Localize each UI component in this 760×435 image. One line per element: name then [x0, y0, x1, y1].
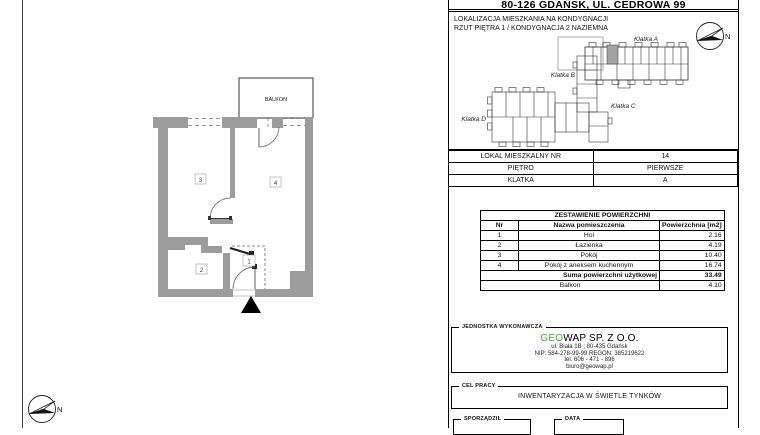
doors: [208, 127, 279, 296]
sum-label: Suma powierzchni użytkowej: [481, 271, 660, 281]
col-header-nr: Nr: [481, 221, 519, 231]
room-area: 10.40: [660, 251, 725, 261]
highlighted-unit: [607, 45, 618, 64]
purpose-text: INWENTARYZACJA W ŚWIETLE TYNKÓW: [452, 393, 727, 400]
table-row: Balkon 4.10: [481, 281, 725, 291]
contractor-email: biuro@geowap.pl: [452, 364, 727, 371]
building-outlines: [488, 37, 689, 147]
title-bar: 80-126 GDAŃSK, UL. CEDROWA 99: [449, 0, 738, 10]
room-name: Łazienka: [519, 241, 660, 251]
page-border-left: [22, 0, 23, 428]
table-row: 3 Pokój 10.40: [481, 251, 725, 261]
room-area: 4.19: [660, 241, 725, 251]
page-title: 80-126 GDAŃSK, UL. CEDROWA 99: [501, 0, 686, 10]
table-row: KLATKA A: [449, 175, 738, 187]
purpose-section: CEL PRACY INWENTARYZACJA W ŚWIETLE TYNKÓ…: [451, 386, 728, 409]
room-area: 2.16: [660, 231, 725, 241]
purpose-section-label: CEL PRACY: [459, 383, 498, 389]
room-name: Pokój z aneksem kuchennym: [519, 261, 660, 271]
room-nr: 4: [481, 261, 519, 271]
compass-needle-filled: [29, 409, 55, 414]
label-klatka-d: Klatka D: [461, 116, 486, 123]
room-area: 16.74: [660, 261, 725, 271]
unit-info-value: A: [593, 175, 738, 187]
col-header-name: Nazwa pomieszczenia: [519, 221, 660, 231]
date-section: DATA: [554, 419, 624, 435]
sum-value: 33.49: [660, 271, 725, 281]
contractor-name-rest: WAP SP. Z O.O.: [563, 333, 638, 344]
unit-info-value: PIERWSZE: [593, 163, 738, 175]
room-name: Pokój: [519, 251, 660, 261]
balcony-row-label: Balkon: [481, 281, 660, 291]
table-row: PIĘTRO PIERWSZE: [449, 163, 738, 175]
table-row: LOKAL MIESZKALNY NR 14: [449, 151, 738, 163]
prepared-by-section: SPORZĄDZIŁ: [453, 419, 531, 435]
area-table-title: ZESTAWIENIE POWIERZCHNI: [481, 211, 725, 221]
apartment-floor-plan: BALKON: [145, 70, 335, 320]
walls: [153, 117, 313, 297]
contractor-name: GEOWAP SP. Z O.O.: [452, 333, 727, 344]
label-klatka-a: Klatka A: [634, 36, 658, 43]
table-row: ZESTAWIENIE POWIERZCHNI: [481, 211, 725, 221]
balcony-label: BALKON: [265, 97, 287, 103]
date-label: DATA: [562, 416, 583, 422]
col-header-area: Powierzchnia [m2]: [660, 221, 725, 231]
room-name: Hol: [519, 231, 660, 241]
north-letter: N: [57, 405, 62, 414]
unit-info-label: LOKAL MIESZKALNY NR: [449, 151, 594, 163]
label-klatka-b: Klatka B: [551, 72, 576, 79]
unit-info-table: LOKAL MIESZKALNY NR 14 PIĘTRO PIERWSZE K…: [448, 150, 738, 187]
contractor-section: JEDNOSTKA WYKONAWCZA GEOWAP SP. Z O.O. u…: [451, 327, 728, 373]
document-page: { "title": "80-126 GDAŃSK, UL. CEDROWA 9…: [0, 0, 760, 428]
north-compass-top: N: [697, 23, 731, 50]
contractor-section-label: JEDNOSTKA WYKONAWCZA: [459, 324, 546, 330]
balcony-row-value: 4.10: [660, 281, 725, 291]
north-letter-top: N: [725, 32, 730, 41]
site-plan: Klatka A Klatka B Klatka C Klatka D N: [449, 12, 736, 149]
table-row: 4 Pokój z aneksem kuchennym 16.74: [481, 261, 725, 271]
table-row: Nr Nazwa pomieszczenia Powierzchnia [m2]: [481, 221, 725, 231]
table-row: 2 Łazienka 4.19: [481, 241, 725, 251]
contractor-name-green: GEO: [540, 333, 563, 344]
unit-info-label: PIĘTRO: [449, 163, 594, 175]
area-summary-table: ZESTAWIENIE POWIERZCHNI Nr Nazwa pomiesz…: [480, 210, 725, 291]
north-compass-bottom: N: [25, 392, 70, 426]
table-row: Suma powierzchni użytkowej 33.49: [481, 271, 725, 281]
table-row: 1 Hol 2.16: [481, 231, 725, 241]
room-nr: 3: [481, 251, 519, 261]
label-klatka-c: Klatka C: [611, 103, 636, 110]
info-column: 80-126 GDAŃSK, UL. CEDROWA 99 LOKALIZACJ…: [448, 0, 739, 428]
unit-info-label: KLATKA: [449, 175, 594, 187]
unit-info-value: 14: [593, 151, 738, 163]
room-nr: 2: [481, 241, 519, 251]
room-labels: 3 4 2 1: [195, 174, 281, 274]
entrance-triangle: [241, 296, 261, 313]
room-nr: 1: [481, 231, 519, 241]
location-section: LOKALIZACJA MIESZKANIA NA KONDYGNACJI RZ…: [449, 11, 738, 150]
prepared-by-label: SPORZĄDZIŁ: [461, 416, 504, 422]
